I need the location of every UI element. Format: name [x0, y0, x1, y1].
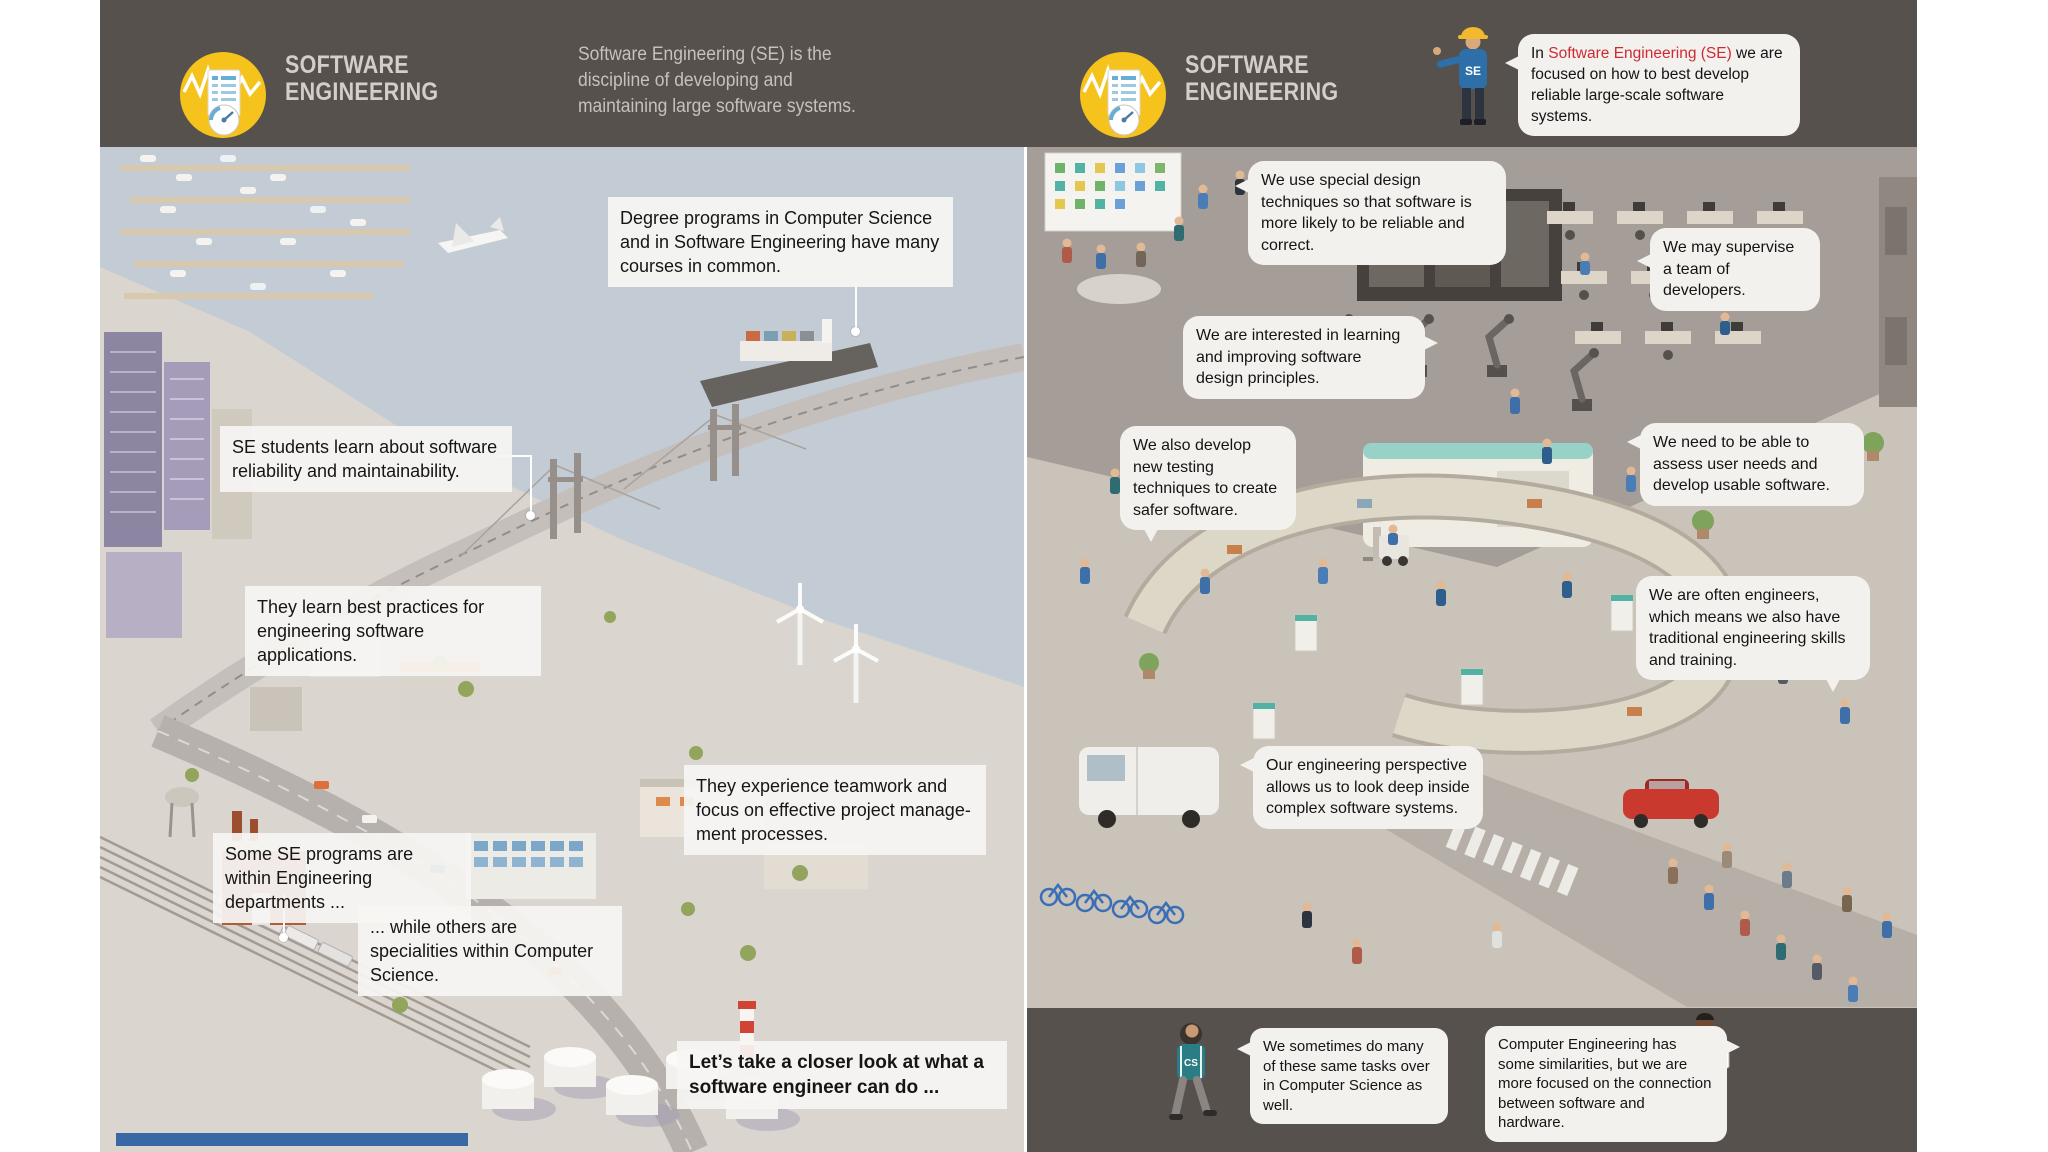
- intro-text-highlight: Software Engineering (SE): [1548, 45, 1732, 62]
- logo-title-line1: SOFTWARE: [1185, 52, 1338, 79]
- se-badge: SE: [1465, 64, 1481, 78]
- callout-connector: [855, 282, 857, 328]
- logo-title-line2: ENGINEERING: [285, 79, 438, 106]
- bubble-tail: [1237, 1042, 1251, 1056]
- bubble-design-techniques: We use special design techniques so that…: [1248, 161, 1506, 265]
- header-description: Software Engineering (SE) is the discipl…: [578, 42, 882, 120]
- right-footer-strip: CS: [1027, 1008, 1917, 1152]
- callout-connector-dot: [526, 511, 535, 520]
- callout-closer-look: Let’s take a closer look at what a softw…: [677, 1041, 1007, 1109]
- cs-badge: CS: [1184, 1058, 1198, 1069]
- bubble-tail: [1826, 679, 1840, 692]
- bubble-assess: We need to be able to assess user needs …: [1640, 423, 1864, 506]
- logo-title: SOFTWARE ENGINEERING: [285, 52, 438, 106]
- bubble-supervise: We may supervise a team of developers.: [1650, 228, 1820, 311]
- logo-title-line1: SOFTWARE: [285, 52, 438, 79]
- bubble-learning: We are interested in learning and improv…: [1183, 316, 1425, 399]
- logo-title-line2: ENGINEERING: [1185, 79, 1338, 106]
- callout-degree-programs: Degree programs in Computer Science and …: [608, 197, 953, 287]
- callout-best-practices: They learn best practices for engineerin…: [245, 586, 541, 676]
- software-engineering-logo: [1078, 48, 1168, 142]
- bubble-text: We need to be able to assess user needs …: [1653, 434, 1830, 494]
- infographic-page: SOFTWARE ENGINEERING Software Engineerin…: [0, 0, 2048, 1152]
- canal-strip: [116, 1133, 468, 1146]
- callout-se-students: SE students learn about software reliabi…: [220, 426, 512, 492]
- bubble-tail: [1240, 758, 1254, 772]
- bubble-text: We also develop new testing techniques t…: [1133, 437, 1277, 519]
- bubble-text: We may supervise a team of developers.: [1663, 239, 1794, 299]
- bubble-same-tasks: We sometimes do many of these same tasks…: [1250, 1028, 1448, 1124]
- solar-building: [466, 833, 596, 899]
- bubble-text: We use special design techniques so that…: [1261, 172, 1472, 254]
- software-engineering-logo: [178, 48, 268, 142]
- bubble-tail: [1144, 529, 1158, 542]
- scrum-board: [1045, 153, 1181, 231]
- bubble-tail: [1235, 179, 1249, 193]
- bubble-text: We sometimes do many of these same tasks…: [1263, 1038, 1430, 1114]
- logo-title: SOFTWARE ENGINEERING: [1185, 52, 1338, 106]
- bubble-tail: [1627, 435, 1641, 449]
- intro-text-pre: In: [1531, 45, 1548, 62]
- left-panel: [100, 147, 1024, 1152]
- cs-character: CS: [1145, 1014, 1241, 1152]
- right-wall: [1879, 177, 1917, 407]
- bubble-tail: [1505, 56, 1519, 70]
- bubble-perspective: Our engineering perspective allows us to…: [1253, 746, 1483, 829]
- callout-connector: [530, 455, 532, 513]
- callout-connector-dot: [279, 933, 288, 942]
- bubble-tail: [1637, 254, 1651, 268]
- bubble-testing: We also develop new testing techniques t…: [1120, 426, 1296, 530]
- bubble-tail: [1424, 336, 1438, 350]
- callout-specialities: ... while others are specialities within…: [358, 906, 622, 996]
- bubble-text: Our engineering perspective allows us to…: [1266, 757, 1470, 817]
- left-illustration: [100, 147, 1024, 1152]
- bubble-text: We are often engineers, which means we a…: [1649, 587, 1846, 669]
- bubble-intro: In Software Engineering (SE) we are focu…: [1518, 34, 1800, 136]
- bubble-text: Computer Engineering has some similariti…: [1498, 1036, 1711, 1131]
- callout-teamwork: They experience teamwork and focus on ef…: [684, 765, 986, 855]
- gauge-icon: [209, 105, 239, 135]
- bubble-text: We are interested in learning and improv…: [1196, 327, 1400, 387]
- gauge-icon: [1109, 105, 1139, 135]
- se-engineer-character: SE: [1428, 18, 1518, 130]
- callout-connector-dot: [851, 327, 860, 336]
- bubble-tail: [1726, 1040, 1740, 1054]
- bubble-often-engineers: We are often engineers, which means we a…: [1636, 576, 1870, 680]
- bubble-computer-engineering: Computer Engineering has some similariti…: [1485, 1026, 1727, 1142]
